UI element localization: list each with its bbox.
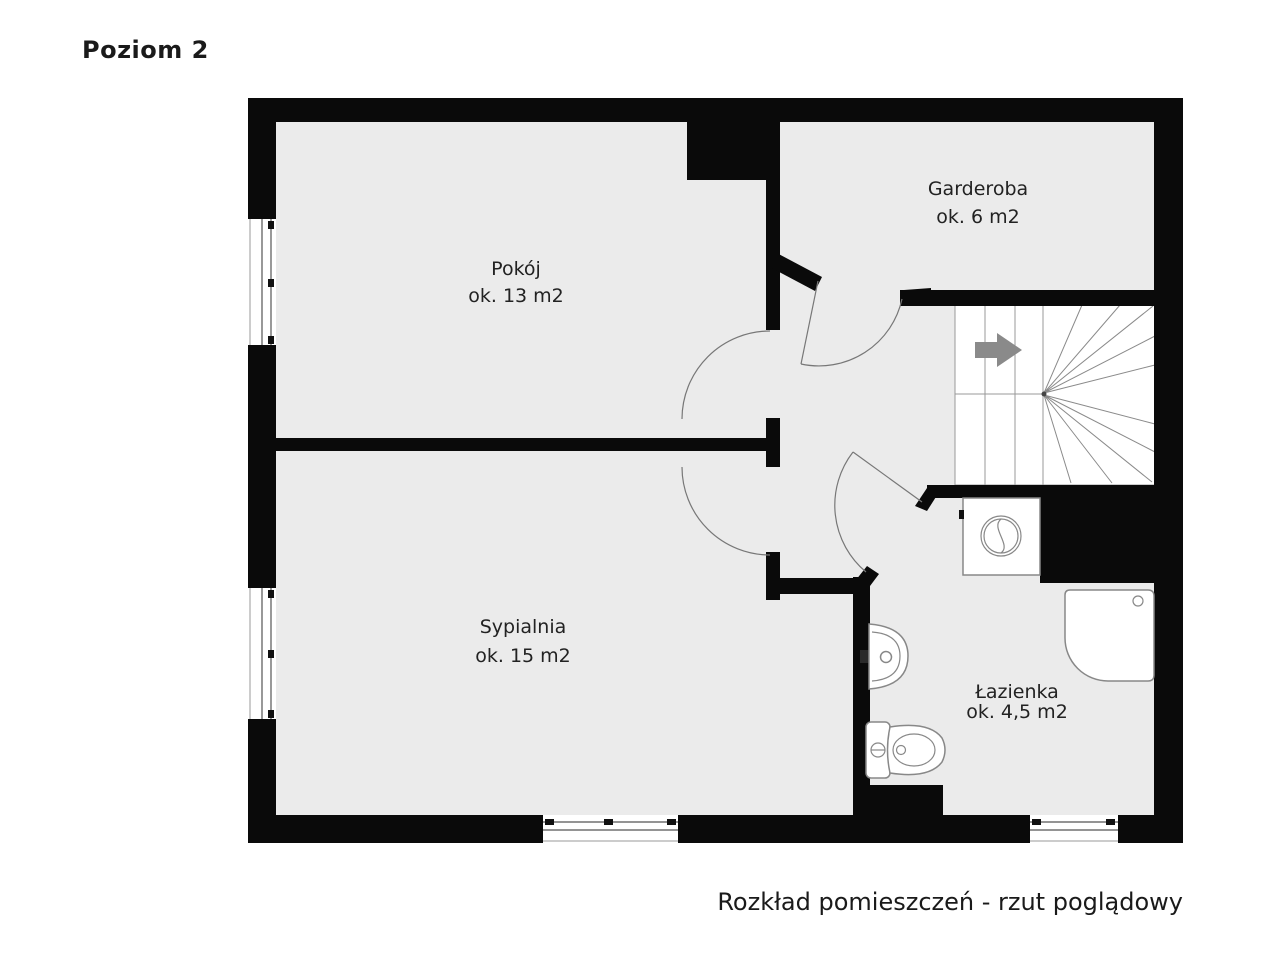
room-label-sypialnia-area: ok. 15 m2 — [475, 645, 571, 667]
window-pokoj — [248, 219, 276, 345]
window-sypialnia-bottom — [543, 815, 678, 843]
room-label-garderoba-area: ok. 6 m2 — [936, 206, 1019, 228]
plan-caption: Rozkład pomieszczeń - rzut poglądowy — [717, 888, 1183, 916]
window-lazienka-bottom — [1030, 815, 1118, 843]
room-label-lazienka-area: ok. 4,5 m2 — [966, 701, 1068, 723]
room-label-sypialnia-name: Sypialnia — [480, 616, 567, 638]
floorplan-page: Poziom 2 — [0, 0, 1280, 968]
room-label-pokoj-name: Pokój — [491, 258, 541, 280]
shower-icon — [1065, 590, 1154, 681]
staircase-icon — [955, 304, 1155, 485]
washing-machine-icon — [959, 498, 1040, 575]
room-label-pokoj-area: ok. 13 m2 — [468, 285, 564, 307]
toilet-icon — [866, 722, 945, 778]
room-label-lazienka-name: Łazienka — [975, 681, 1059, 703]
floorplan-drawing — [0, 0, 1280, 968]
room-label-garderoba-name: Garderoba — [928, 178, 1028, 200]
window-sypialnia-left — [248, 588, 276, 719]
